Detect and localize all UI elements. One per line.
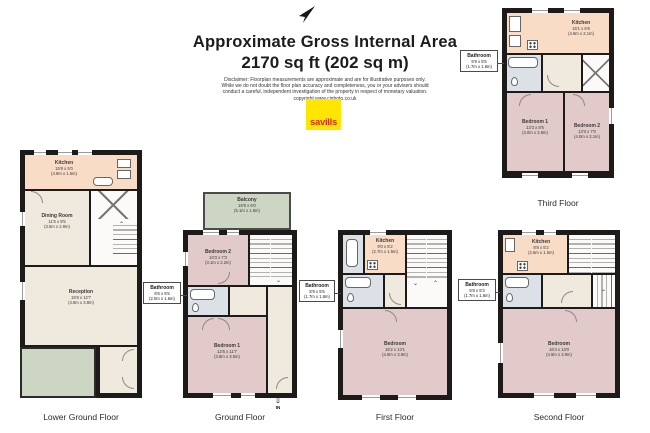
bathroom-callout-third: Bathroom 5'9 x 5'5 (1.7m x 1.6m) — [460, 50, 498, 72]
sink-fixture — [509, 35, 521, 47]
room-bedroom1: Bedroom 1 13'3 x 8'6 (4.0m x 2.6m) — [507, 93, 563, 171]
bathtub-fixture — [505, 277, 529, 288]
savills-logo-text: savills — [310, 117, 337, 130]
room-bedroom: Bedroom 16'2 x 13'1 (4.9m x 3.9m) — [343, 309, 447, 395]
window-opening — [78, 150, 92, 155]
door-arc — [122, 349, 134, 361]
window-opening — [183, 252, 188, 266]
room-dims-m: (2.0m x 1.6m) — [145, 296, 179, 301]
callout-connector — [335, 293, 341, 294]
stairs — [583, 55, 609, 91]
room-bedroom2: Bedroom 2 10'3 x 7'3 (3.1m x 2.2m) — [188, 235, 248, 285]
room-kitchen: Kitchen 9'0 x 5'2 (2.7m x 1.5m) — [365, 235, 405, 273]
room-label: Kitchen 16'1 x 6'9 (4.9m x 2.1m) — [553, 20, 609, 36]
stair-treads — [427, 235, 447, 279]
room-dining: Dining Room 11'5 x 9'5 (3.5m x 2.9m) — [25, 191, 89, 265]
second-floor-plan: Kitchen 8'8 x 5'2 (2.6m x 1.5m) ⌄ Bedroo… — [498, 230, 620, 398]
window-opening — [609, 108, 614, 124]
bathtub-fixture — [190, 289, 215, 300]
door-arc — [561, 291, 573, 303]
room-bedroom2: Bedroom 2 13'3 x 7'0 (4.0m x 2.1m) — [565, 93, 609, 171]
room-dims-m: (5.1m x 1.8m) — [219, 208, 275, 213]
room-label: Bedroom 2 10'3 x 7'3 (3.1m x 2.2m) — [190, 249, 246, 265]
stairs-landing: ⌄ — [593, 275, 615, 307]
lower-ground-floor-plan: Kitchen 15'8 x 5'0 (4.8m x 1.5m) Dining … — [20, 150, 142, 398]
stair-direction-chevron: ⌃ — [119, 222, 124, 228]
window-opening — [20, 212, 25, 226]
toilet-fixture — [506, 293, 513, 302]
patio — [20, 347, 96, 398]
room-label: Bedroom 16'4 x 13'0 (4.9m x 3.9m) — [534, 341, 584, 357]
room-label: Kitchen 15'8 x 5'0 (4.8m x 1.5m) — [35, 160, 93, 176]
floor-caption-second: Second Floor — [498, 412, 620, 422]
hallway — [230, 287, 266, 315]
window-opening — [58, 150, 72, 155]
window-opening — [534, 393, 554, 398]
window-opening — [213, 393, 231, 398]
stair-treads — [271, 235, 292, 277]
hob-fixture — [517, 261, 528, 271]
bathroom-callout-first: Bathroom 5'9 x 5'5 (1.7m x 1.6m) — [299, 280, 335, 302]
hallway — [543, 55, 581, 91]
entry-corridor — [268, 287, 292, 393]
room-dims-m: (3.1m x 2.2m) — [190, 260, 246, 265]
room-label: Bedroom 16'2 x 13'1 (4.9m x 3.9m) — [370, 341, 420, 357]
door-arc — [389, 293, 401, 305]
appliance-fixture — [505, 238, 515, 252]
window-opening — [227, 230, 239, 235]
window-opening — [522, 230, 536, 235]
hob-fixture — [367, 260, 378, 270]
room-dims-m: (2.7m x 1.5m) — [365, 249, 405, 254]
window-opening — [203, 230, 219, 235]
entry-marker: ⇧ IN — [268, 396, 288, 411]
room-dims-m: (4.9m x 3.9m) — [534, 352, 584, 357]
door-arc — [31, 191, 43, 203]
room-dims-m: (3.5m x 2.9m) — [28, 224, 86, 229]
stairs — [569, 235, 615, 273]
stair-treads — [569, 235, 591, 273]
window-opening — [398, 395, 416, 400]
understair-storage — [91, 191, 137, 219]
stair-treads — [250, 235, 270, 277]
floor-caption-first: First Floor — [338, 412, 452, 422]
room-dims-m: (4.9m x 2.1m) — [553, 31, 609, 36]
appliance-fixture — [117, 159, 131, 168]
room-dims-m: (4.8m x 1.5m) — [35, 171, 93, 176]
window-opening — [362, 395, 380, 400]
room-kitchen: Kitchen 16'1 x 6'9 (4.9m x 2.1m) — [507, 13, 609, 53]
hallway — [543, 275, 591, 307]
bathtub-fixture — [508, 57, 538, 68]
entry-label: IN — [268, 406, 288, 411]
room-label: Bedroom 1 12'6 x 11'7 (3.8m x 3.5m) — [198, 343, 256, 359]
window-opening — [498, 343, 503, 363]
entry-arrow-icon: ⇧ — [268, 396, 288, 406]
door-arc — [519, 94, 531, 106]
door-arc — [218, 318, 230, 330]
room-dims-m: (4.9m x 3.9m) — [370, 352, 420, 357]
floor-caption-lower-ground: Lower Ground Floor — [20, 412, 142, 422]
room-dims-m: (2.6m x 1.5m) — [517, 250, 565, 255]
door-arc — [385, 310, 397, 322]
hob-fixture — [527, 40, 538, 50]
sink-fixture — [93, 177, 113, 186]
bathtub-fixture — [346, 239, 358, 267]
room-bathroom — [188, 287, 228, 315]
window-opening — [564, 8, 580, 13]
window-opening — [544, 230, 556, 235]
stair-direction-chevron: ⌄ — [601, 287, 606, 293]
callout-connector — [498, 63, 504, 64]
floor-caption-ground: Ground Floor — [183, 412, 297, 422]
savills-logo: savills — [306, 99, 341, 130]
bathroom-callout-second: Bathroom 5'8 x 5'3 (1.7m x 1.6m) — [458, 279, 496, 301]
shower-room — [343, 235, 363, 273]
room-dims-m: (3.8m x 3.5m) — [198, 354, 256, 359]
window-opening — [572, 173, 588, 178]
appliance-fixture — [509, 16, 521, 32]
room-dims-m: (4.8m x 3.8m) — [51, 300, 111, 305]
toilet-fixture — [347, 293, 354, 302]
room-label: Dining Room 11'5 x 9'5 (3.5m x 2.9m) — [28, 213, 86, 229]
door-arc — [573, 94, 585, 106]
room-reception: Reception 15'8 x 12'7 (4.8m x 3.8m) — [25, 267, 137, 345]
north-arrow-icon — [293, 4, 317, 28]
bathtub-fixture — [345, 277, 371, 288]
room-dims-m: (1.7m x 1.6m) — [301, 294, 333, 299]
door-arc — [565, 310, 577, 322]
room-bathroom — [503, 275, 541, 307]
appliance-fixture — [117, 170, 131, 179]
floorplan-page: Approximate Gross Internal Area 2170 sq … — [0, 0, 650, 433]
room-label: Balcony 16'8 x 6'0 (5.1m x 1.8m) — [219, 197, 275, 213]
toilet-fixture — [511, 77, 518, 86]
room-bedroom1: Bedroom 1 12'6 x 11'7 (3.8m x 3.5m) — [188, 317, 266, 393]
stair-treads — [407, 235, 426, 279]
callout-connector — [496, 292, 500, 293]
balcony: Balcony 16'8 x 6'0 (5.1m x 1.8m) — [203, 192, 291, 230]
room-label: Bedroom 2 13'3 x 7'0 (4.0m x 2.1m) — [565, 123, 609, 139]
stair-direction-chevron: ⌄ — [276, 278, 281, 284]
door-arc — [276, 377, 288, 389]
stair-direction-chevron: ⌄ — [413, 281, 418, 287]
rear-lobby — [100, 347, 137, 393]
floor-caption-third: Third Floor — [502, 198, 614, 208]
window-opening — [522, 173, 538, 178]
room-dims-m: (4.0m x 2.6m) — [510, 130, 560, 135]
ground-floor-plan: Bedroom 2 10'3 x 7'3 (3.1m x 2.2m) ⌄ Bed… — [183, 230, 297, 398]
room-label: Reception 15'8 x 12'7 (4.8m x 3.8m) — [51, 289, 111, 305]
room-bathroom — [507, 55, 541, 91]
room-label: Bedroom 1 13'3 x 8'6 (4.0m x 2.6m) — [510, 119, 560, 135]
stairs: ⌃ — [91, 191, 137, 265]
callout-connector — [181, 295, 187, 296]
window-opening — [20, 282, 25, 300]
room-dims-m: (4.0m x 2.1m) — [565, 134, 609, 139]
stairs: ⌄ — [250, 235, 292, 285]
room-kitchen: Kitchen 15'8 x 5'0 (4.8m x 1.5m) — [25, 155, 137, 189]
window-opening — [532, 8, 548, 13]
first-floor-plan: Kitchen 9'0 x 5'2 (2.7m x 1.5m) ⌄ ⌃ Bedr… — [338, 230, 452, 400]
window-opening — [338, 330, 343, 348]
window-opening — [241, 393, 255, 398]
room-bathroom — [343, 275, 383, 307]
door-arc — [122, 377, 134, 389]
room-kitchen: Kitchen 8'8 x 5'2 (2.6m x 1.5m) — [503, 235, 567, 273]
door-arc — [218, 272, 230, 284]
room-label: Kitchen 8'8 x 5'2 (2.6m x 1.5m) — [517, 239, 565, 255]
window-opening — [34, 150, 46, 155]
window-opening — [370, 230, 386, 235]
room-label: Kitchen 9'0 x 5'2 (2.7m x 1.5m) — [365, 238, 405, 254]
door-arc — [547, 75, 559, 87]
room-dims-m: (1.7m x 1.6m) — [460, 293, 494, 298]
stair-treads — [113, 221, 137, 257]
stairs: ⌄ ⌃ — [407, 235, 447, 307]
room-dims-m: (1.7m x 1.6m) — [462, 64, 496, 69]
bathroom-callout-ground: Bathroom 6'6 x 5'5 (2.0m x 1.6m) — [143, 282, 181, 304]
toilet-fixture — [192, 303, 199, 312]
room-bedroom: Bedroom 16'4 x 13'0 (4.9m x 3.9m) — [503, 309, 615, 393]
door-arc — [202, 318, 214, 330]
stair-treads — [592, 235, 615, 273]
third-floor-plan: Kitchen 16'1 x 6'9 (4.9m x 2.1m) Bedroom… — [502, 8, 614, 178]
hallway — [385, 275, 405, 307]
stair-direction-chevron: ⌃ — [433, 281, 438, 287]
window-opening — [576, 393, 596, 398]
